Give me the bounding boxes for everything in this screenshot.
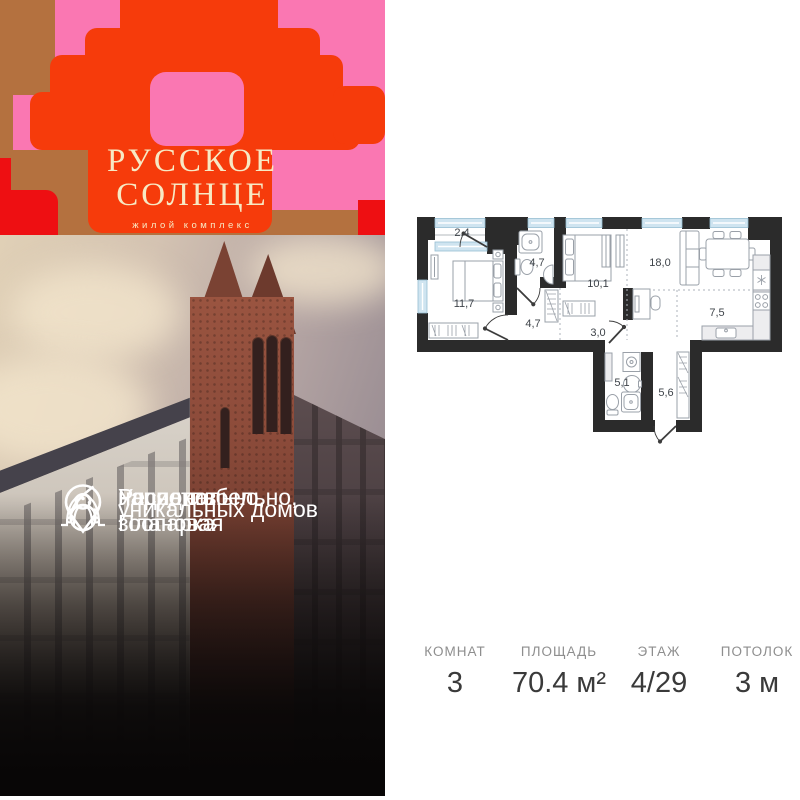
stat-rooms: КОМНАТ 3 <box>405 644 505 700</box>
room-label-hallway: 4,7 <box>525 318 540 330</box>
stat-rooms-label: КОМНАТ <box>405 644 505 659</box>
room-label-bathroom-2: 5,1 <box>614 377 629 389</box>
kokoshnik-icon <box>60 483 106 529</box>
stat-ceiling-label: ПОТОЛОК <box>707 644 800 659</box>
room-label-bedroom-2: 10,1 <box>587 278 608 290</box>
stat-rooms-value: 3 <box>405 667 505 700</box>
room-label-bedroom-1: 11,7 <box>454 298 475 310</box>
stat-floor: ЭТАЖ 4/29 <box>609 644 709 700</box>
residential-complex-promo-card[interactable]: РУССКОЕ СОЛНЦЕ жилой комплекс <box>0 0 385 796</box>
brand-subtitle: жилой комплекс <box>0 220 385 231</box>
stat-floor-label: ЭТАЖ <box>609 644 709 659</box>
brand-name-line2: СОЛНЦЕ <box>0 178 385 212</box>
brand-logo: РУССКОЕ СОЛНЦЕ жилой комплекс <box>0 0 385 235</box>
feature-style: Респектабельно, национально, нарядно <box>0 483 118 529</box>
stat-ceiling: ПОТОЛОК 3 м <box>707 644 800 700</box>
floor-plan[interactable]: 2,4 4,7 10,1 18,0 11,7 4,7 3,0 7,5 5,1 5… <box>405 195 795 480</box>
apartment-stats: КОМНАТ 3 ПЛОЩАДЬ 70.4 м² ЭТАЖ 4/29 ПОТОЛ… <box>405 644 800 714</box>
room-label-bathroom: 4,7 <box>529 257 544 269</box>
room-label-corridor: 3,0 <box>590 327 605 339</box>
room-label-balcony: 2,4 <box>454 227 469 239</box>
stat-area-label: ПЛОЩАДЬ <box>509 644 609 659</box>
stat-ceiling-value: 3 м <box>707 667 800 700</box>
brand-name-line1: РУССКОЕ <box>0 144 385 178</box>
room-label-kitchen: 7,5 <box>709 307 724 319</box>
stat-area: ПЛОЩАДЬ 70.4 м² <box>509 644 609 700</box>
stat-area-value: 70.4 м² <box>509 667 609 700</box>
room-label-living: 18,0 <box>649 257 670 269</box>
building-photo: Ул. Плановая напротив зоопарка уникальны… <box>0 235 385 796</box>
room-label-entry-hall: 5,6 <box>658 387 673 399</box>
stat-floor-value: 4/29 <box>609 667 709 700</box>
